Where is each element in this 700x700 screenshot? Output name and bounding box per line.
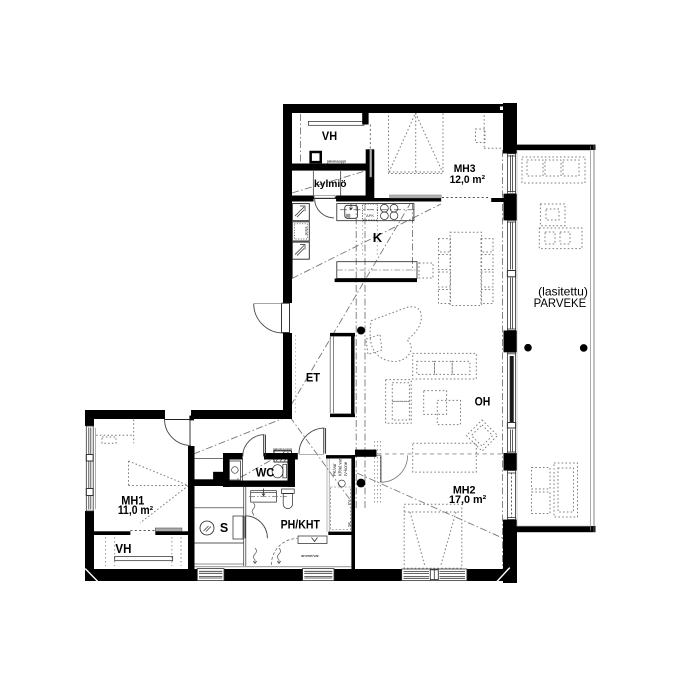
- svg-text:17,0 m²: 17,0 m²: [449, 494, 487, 506]
- svg-text:APK: APK: [366, 213, 374, 218]
- svg-text:SK: SK: [348, 521, 352, 527]
- svg-text:amme/var: amme/var: [301, 553, 319, 558]
- svg-text:12,0 m²: 12,0 m²: [450, 174, 486, 186]
- svg-text:VH: VH: [115, 541, 131, 556]
- svg-text:S: S: [220, 521, 228, 535]
- svg-text:IV-kone: IV-kone: [343, 461, 348, 476]
- svg-text:PK/var: PK/var: [332, 463, 337, 476]
- svg-text:jakokaappi: jakokaappi: [272, 447, 292, 452]
- svg-text:KR/el.var: KR/el.var: [338, 458, 343, 476]
- svg-text:ET: ET: [306, 371, 321, 385]
- svg-text:PV: PV: [348, 499, 352, 505]
- svg-text:K: K: [373, 230, 383, 245]
- svg-text:jakokaappi: jakokaappi: [326, 158, 346, 163]
- svg-text:WC: WC: [256, 467, 275, 479]
- svg-text:11,0 m²: 11,0 m²: [118, 505, 153, 517]
- svg-text:PH/KHT: PH/KHT: [281, 519, 320, 531]
- svg-text:VH: VH: [322, 129, 337, 143]
- svg-text:OH: OH: [475, 397, 491, 409]
- svg-text:JK/PA: JK/PA: [305, 226, 309, 236]
- svg-text:PARVEKE: PARVEKE: [534, 296, 587, 310]
- svg-text:kylmiö: kylmiö: [314, 178, 347, 190]
